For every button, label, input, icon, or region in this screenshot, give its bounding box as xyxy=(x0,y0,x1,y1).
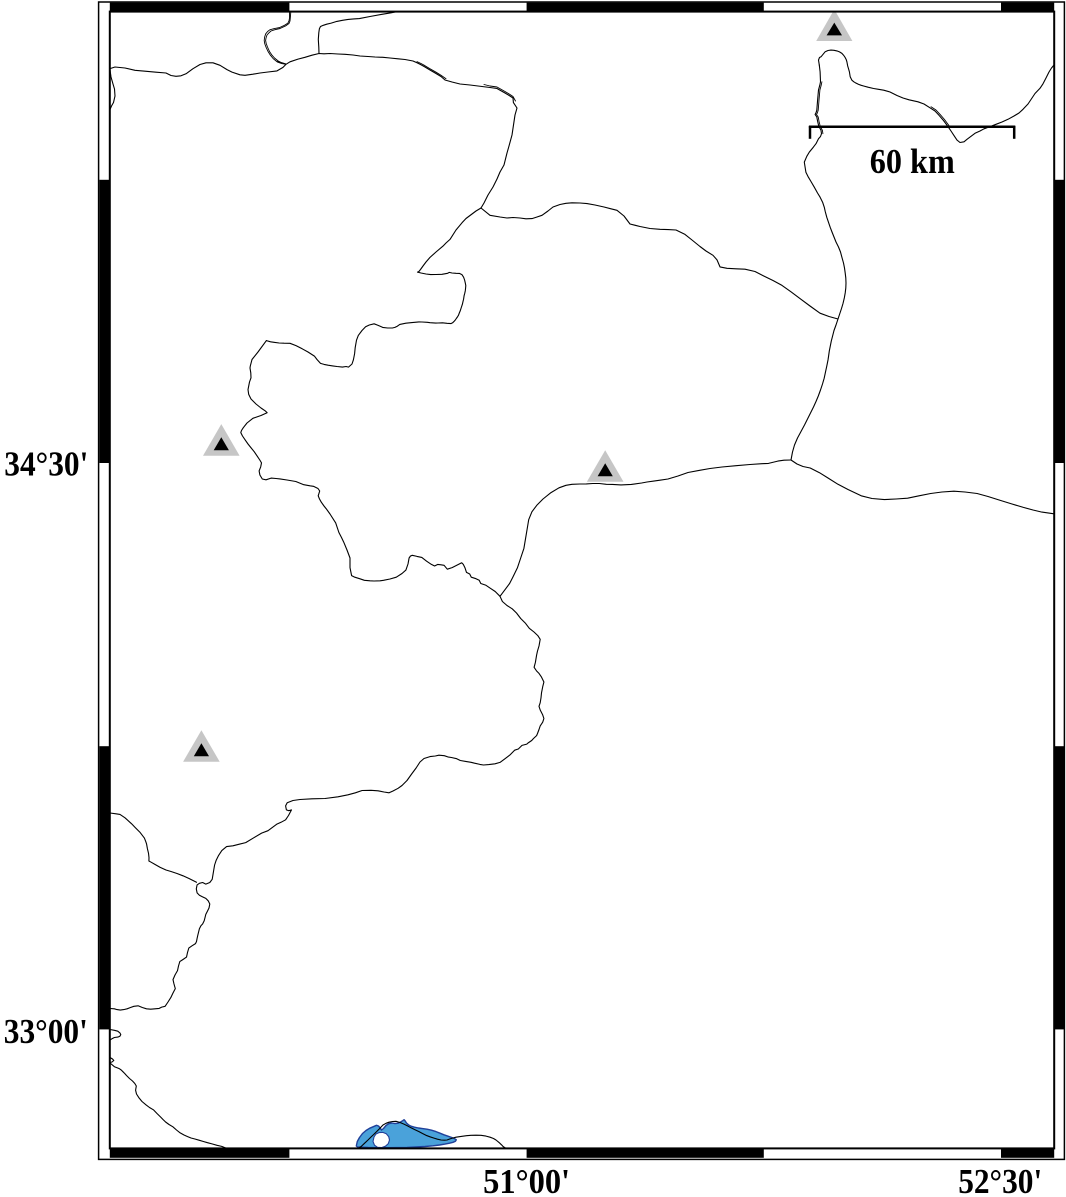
svg-text:51°00': 51°00' xyxy=(483,1162,570,1197)
svg-text:34°30': 34°30' xyxy=(4,444,88,483)
svg-text:33°00': 33°00' xyxy=(4,1012,88,1051)
svg-text:60 km: 60 km xyxy=(870,142,955,181)
svg-text:52°30': 52°30' xyxy=(958,1162,1042,1197)
